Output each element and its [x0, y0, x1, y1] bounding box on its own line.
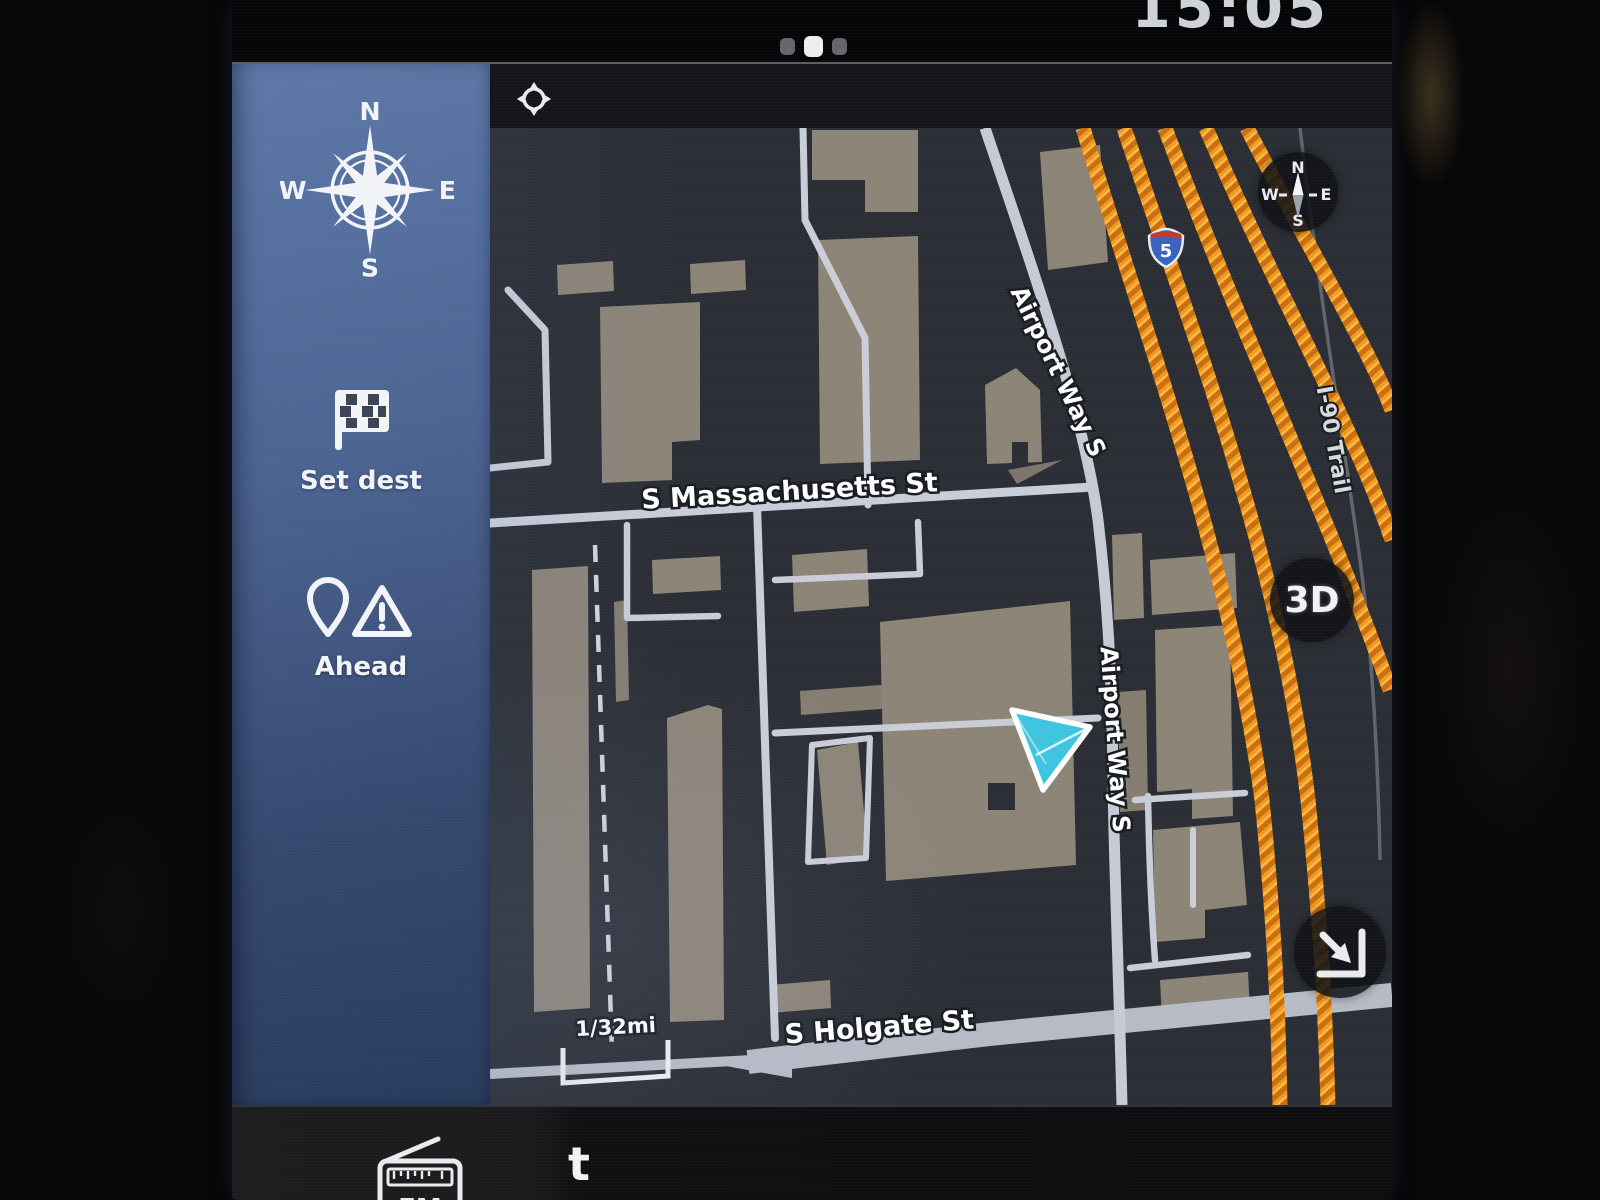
photo-frame: 15:05 [0, 0, 1600, 1200]
shield-route-number: 5 [1160, 241, 1173, 262]
scale-label: 1/32mi [575, 1013, 657, 1041]
fm-radio-icon: FM [372, 1135, 468, 1200]
page-indicator[interactable] [780, 36, 847, 57]
view-mode-label: 3D [1285, 580, 1340, 621]
view-mode-3d-button[interactable]: 3D [1270, 558, 1354, 642]
building-notch [1012, 442, 1028, 464]
dashed-boundary [595, 545, 612, 1050]
compass-s: S [361, 253, 379, 280]
map-compass-button[interactable]: N S W E [1258, 152, 1338, 232]
page-dot [832, 38, 847, 55]
compass-needle-icon: N S W E [1258, 152, 1338, 232]
sidebar-item-label: Set dest [300, 466, 422, 496]
compass-w: W [280, 176, 306, 205]
now-playing-row[interactable]: t [552, 1107, 1252, 1200]
fm-label: FM [398, 1194, 442, 1200]
infotainment-screen: 15:05 [232, 0, 1392, 1200]
hazard-ahead-icon [301, 572, 421, 642]
checkered-flag-icon [325, 380, 397, 456]
map-region: 5 S Massachusetts St S Holgate St Airpor… [490, 64, 1392, 1105]
compass-rose: N S W E [280, 100, 460, 280]
compass-e: E [1321, 185, 1332, 204]
map-canvas[interactable]: 5 S Massachusetts St S Holgate St Airpor… [490, 128, 1392, 1105]
sidebar-item-ahead[interactable]: Ahead [232, 572, 490, 682]
locate-crosshair-icon[interactable] [516, 81, 552, 117]
bezel-reflection [40, 760, 200, 1060]
track-text: t [568, 1137, 590, 1191]
bezel-reflection [1396, 0, 1466, 190]
arrow-to-corner-icon [1294, 906, 1386, 998]
map-drawing: 5 S Massachusetts St S Holgate St Airpor… [490, 128, 1392, 1105]
compass-e: E [439, 176, 456, 205]
interstate-5-shield: 5 [1149, 229, 1183, 267]
nav-app: N S W E [232, 64, 1392, 1105]
status-bar: 15:05 [232, 0, 1392, 62]
nav-sidebar: N S W E [232, 64, 490, 1105]
street-label-airport-way-south: Airport Way S [1095, 646, 1136, 834]
bezel-reflection [1420, 460, 1600, 880]
compass-n: N [359, 100, 380, 126]
media-bar: FM t [232, 1105, 1392, 1200]
page-dot-active [804, 36, 823, 57]
map-top-strip [490, 64, 1392, 128]
compass-w: W [1261, 185, 1279, 204]
page-dot [780, 38, 795, 55]
building-courtyard [988, 783, 1015, 810]
sidebar-item-set-dest[interactable]: Set dest [232, 380, 490, 496]
clock: 15:05 [1132, 0, 1330, 41]
sidebar-item-label: Ahead [315, 652, 407, 682]
minimize-map-button[interactable] [1294, 906, 1386, 998]
fm-radio-tile[interactable]: FM [344, 1107, 544, 1200]
compass-rose-icon: N S W E [280, 100, 460, 280]
